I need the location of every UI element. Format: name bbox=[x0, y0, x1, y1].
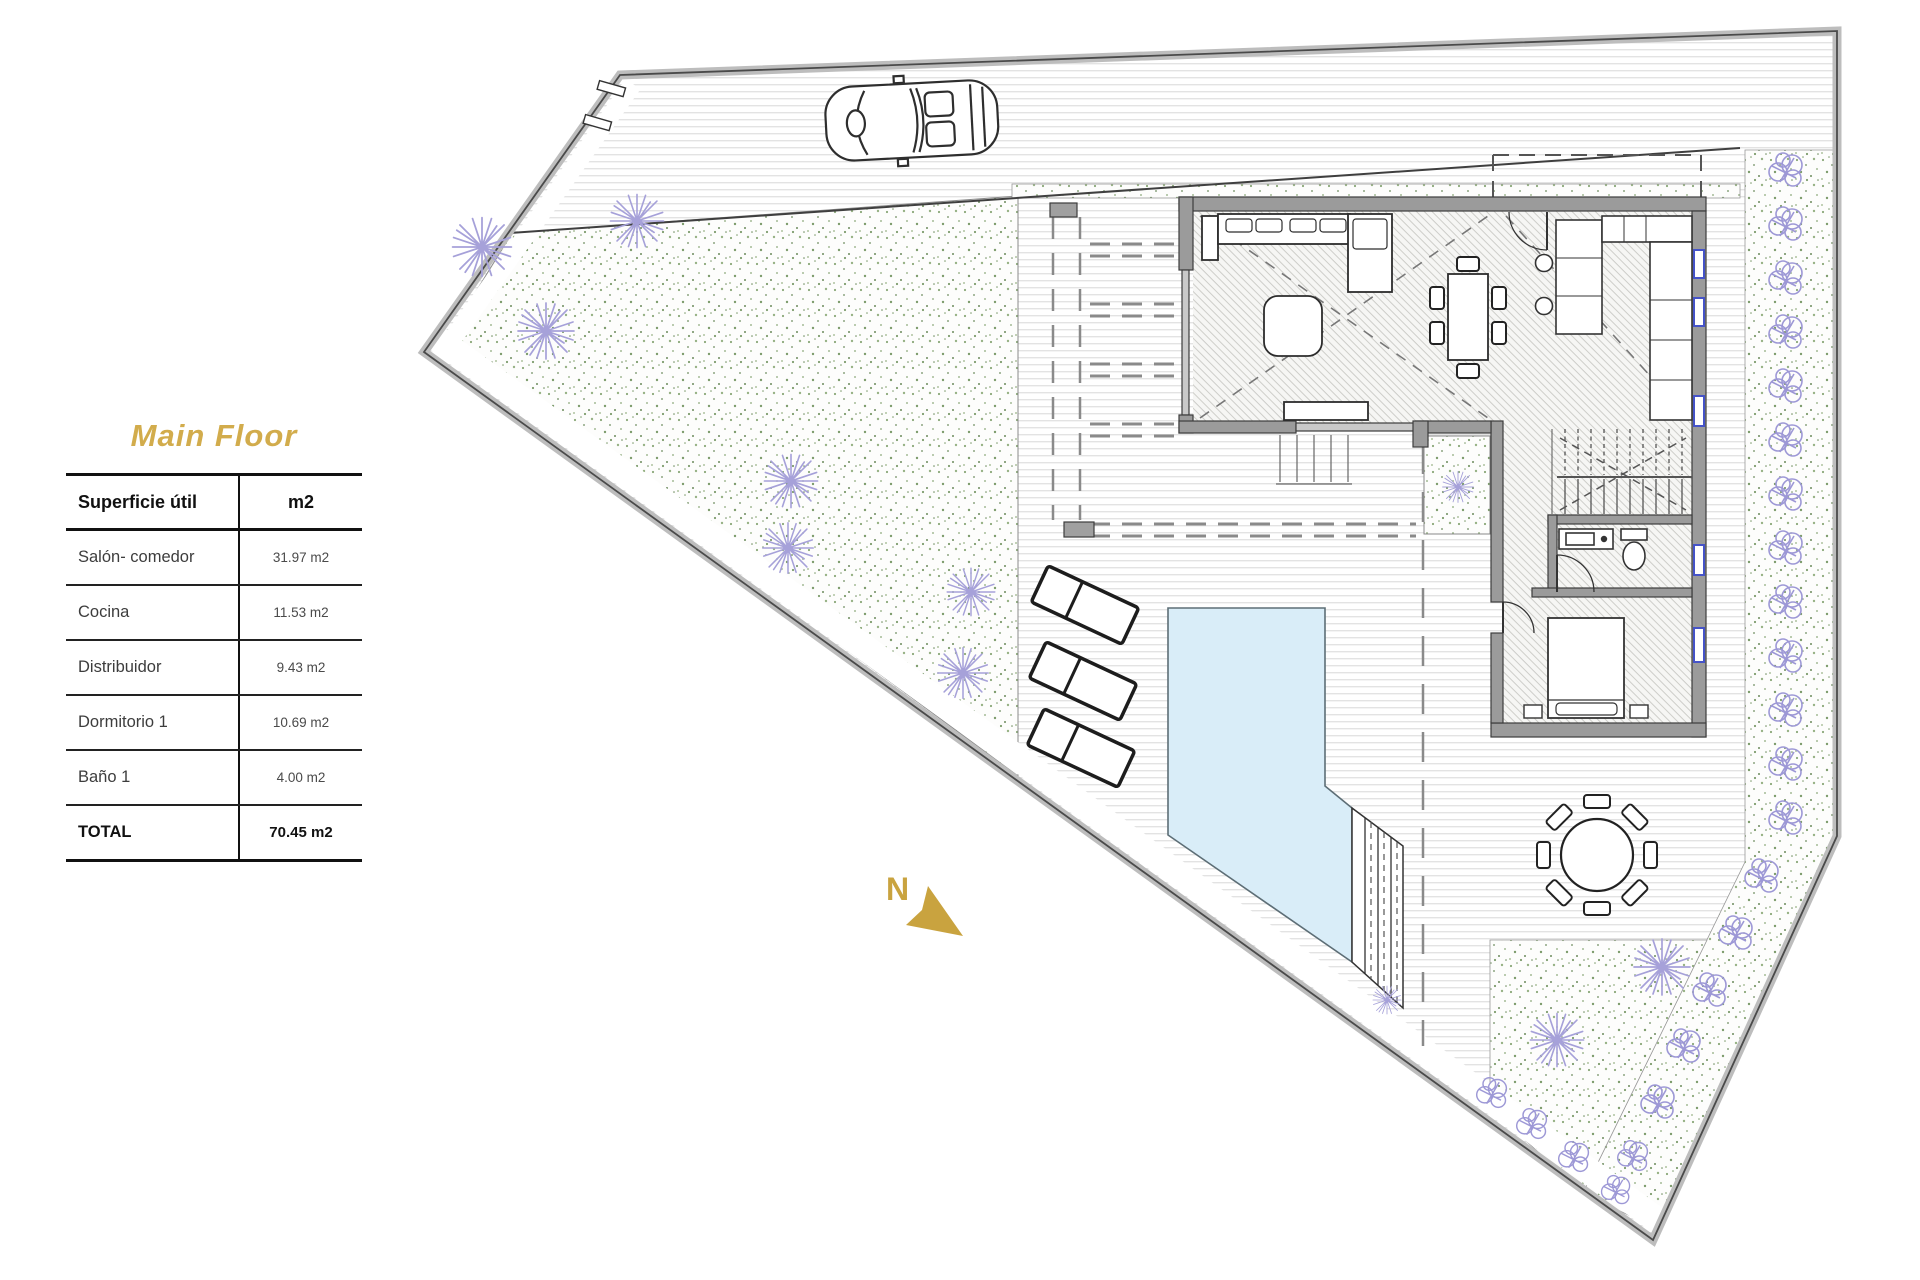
pergola-pillar bbox=[1050, 203, 1077, 217]
car-icon bbox=[824, 71, 1000, 170]
row-value: 4.00 m2 bbox=[240, 751, 362, 804]
total-value: 70.45 m2 bbox=[240, 806, 362, 859]
row-label: Dormitorio 1 bbox=[66, 696, 240, 749]
header-label: Superficie útil bbox=[66, 476, 240, 528]
north-label: N bbox=[886, 871, 909, 907]
table-row: Salón- comedor 31.97 m2 bbox=[66, 531, 362, 586]
table-row: Distribuidor 9.43 m2 bbox=[66, 641, 362, 696]
row-label: Baño 1 bbox=[66, 751, 240, 804]
header-unit: m2 bbox=[240, 476, 362, 528]
row-value: 10.69 m2 bbox=[240, 696, 362, 749]
table-row: Baño 1 4.00 m2 bbox=[66, 751, 362, 806]
north-arrow-icon: N bbox=[886, 871, 963, 936]
kitchen-counter-top bbox=[1602, 216, 1692, 242]
table-header-row: Superficie útil m2 bbox=[66, 473, 362, 531]
kitchen-counter-right bbox=[1650, 242, 1692, 420]
coffee-table bbox=[1264, 296, 1322, 356]
nightstand bbox=[1630, 705, 1648, 718]
sideboard bbox=[1202, 216, 1218, 260]
row-value: 31.97 m2 bbox=[240, 531, 362, 584]
table-total-row: TOTAL 70.45 m2 bbox=[66, 806, 362, 862]
total-label: TOTAL bbox=[66, 806, 240, 859]
dining-table bbox=[1448, 274, 1488, 360]
stool bbox=[1536, 298, 1553, 315]
row-value: 11.53 m2 bbox=[240, 586, 362, 639]
tv-bench bbox=[1284, 402, 1368, 420]
stool bbox=[1536, 255, 1553, 272]
row-label: Distribuidor bbox=[66, 641, 240, 694]
pergola-pillar bbox=[1064, 522, 1094, 537]
row-label: Cocina bbox=[66, 586, 240, 639]
toilet-tank bbox=[1621, 529, 1647, 540]
toilet-bowl bbox=[1623, 542, 1645, 570]
table-row: Cocina 11.53 m2 bbox=[66, 586, 362, 641]
table-row: Dormitorio 1 10.69 m2 bbox=[66, 696, 362, 751]
pillow bbox=[1556, 703, 1617, 715]
nightstand bbox=[1524, 705, 1542, 718]
area-table: Superficie útil m2 Salón- comedor 31.97 … bbox=[66, 473, 362, 862]
kitchen-island bbox=[1556, 220, 1602, 334]
sun-loungers bbox=[1027, 566, 1139, 788]
row-value: 9.43 m2 bbox=[240, 641, 362, 694]
row-label: Salón- comedor bbox=[66, 531, 240, 584]
page-title: Main Floor bbox=[66, 418, 362, 454]
